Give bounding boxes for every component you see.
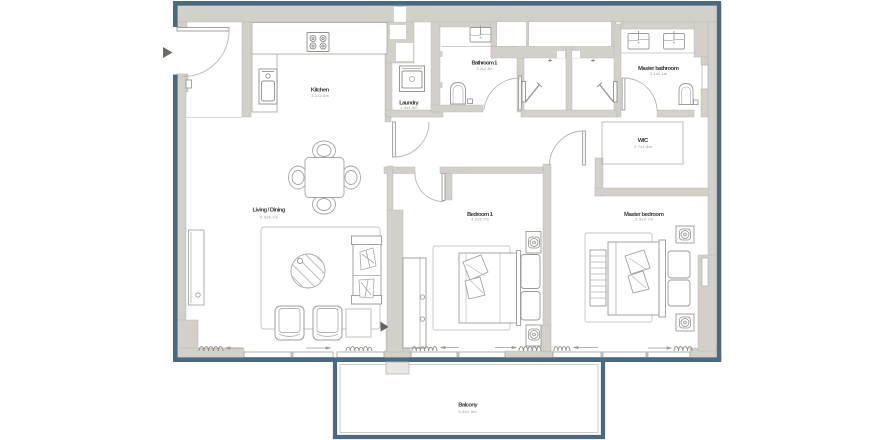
svg-text:5.9x5.1m: 5.9x5.1m <box>260 216 278 220</box>
svg-text:4.2x3.7m: 4.2x3.7m <box>471 217 489 221</box>
svg-text:Bathroom 1: Bathroom 1 <box>472 61 499 67</box>
svg-text:2.7x1.8m: 2.7x1.8m <box>634 145 652 149</box>
svg-text:1.5x1.5m: 1.5x1.5m <box>401 106 418 110</box>
svg-text:WIC: WIC <box>638 138 649 144</box>
svg-text:3.2x2.3m: 3.2x2.3m <box>477 67 493 71</box>
svg-text:Kitchen: Kitchen <box>311 88 330 94</box>
svg-text:Balcony: Balcony <box>458 403 478 409</box>
svg-text:3.2x2.6m: 3.2x2.6m <box>311 94 329 98</box>
svg-text:Living / Dining: Living / Dining <box>253 208 286 214</box>
svg-text:6.6x2.0m: 6.6x2.0m <box>459 410 477 414</box>
svg-text:Master bathroom: Master bathroom <box>638 66 679 72</box>
svg-text:3.3x3.7m: 3.3x3.7m <box>635 217 653 221</box>
svg-text:3.1x2.1m: 3.1x2.1m <box>650 72 667 76</box>
